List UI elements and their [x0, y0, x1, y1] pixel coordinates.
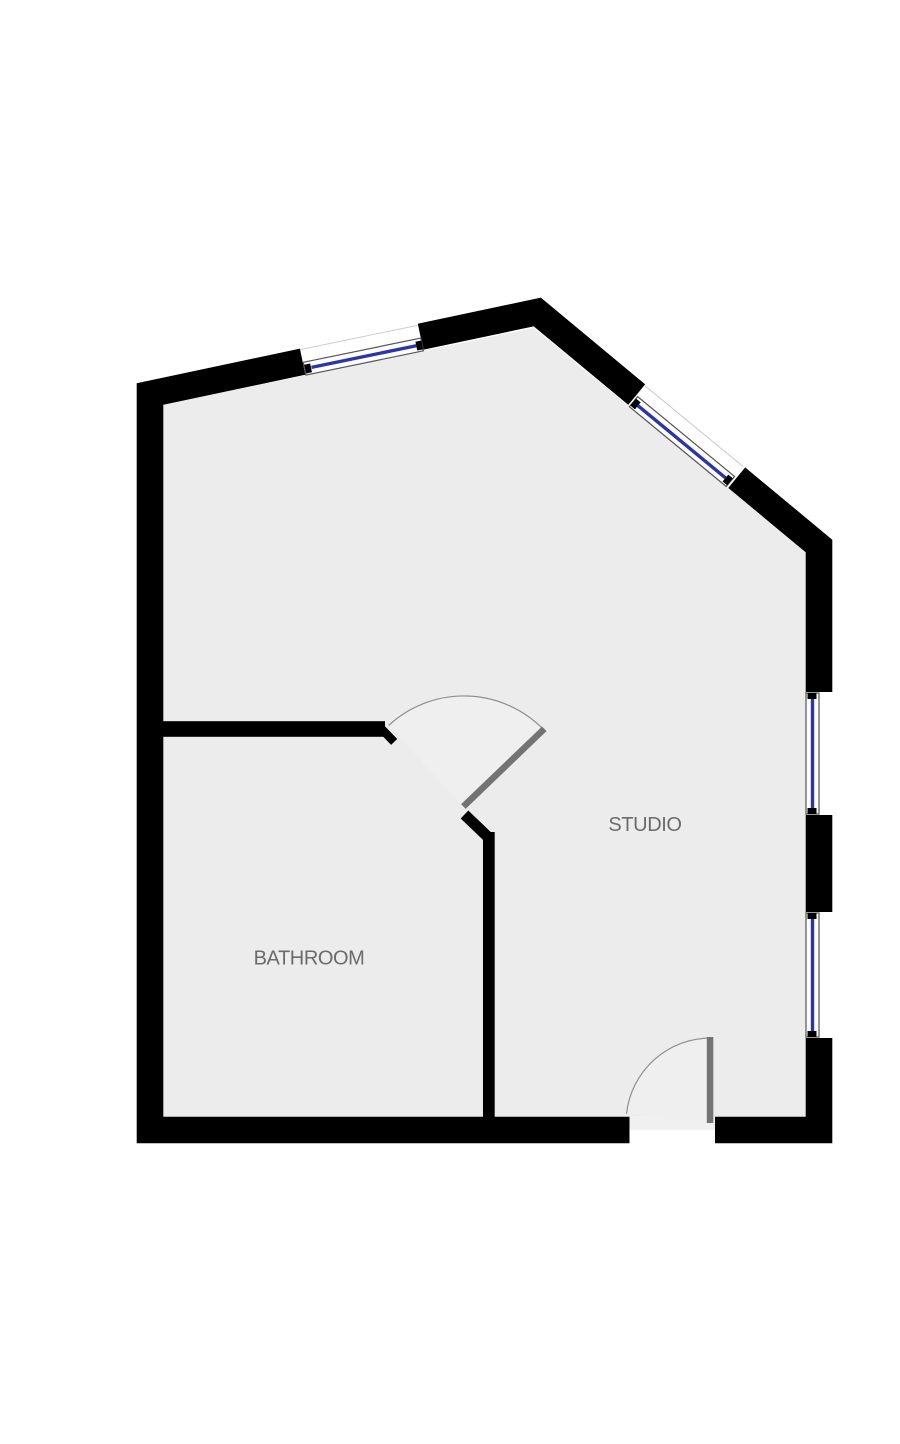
svg-text:BATHROOM: BATHROOM [254, 948, 365, 970]
svg-text:STUDIO: STUDIO [608, 814, 681, 836]
